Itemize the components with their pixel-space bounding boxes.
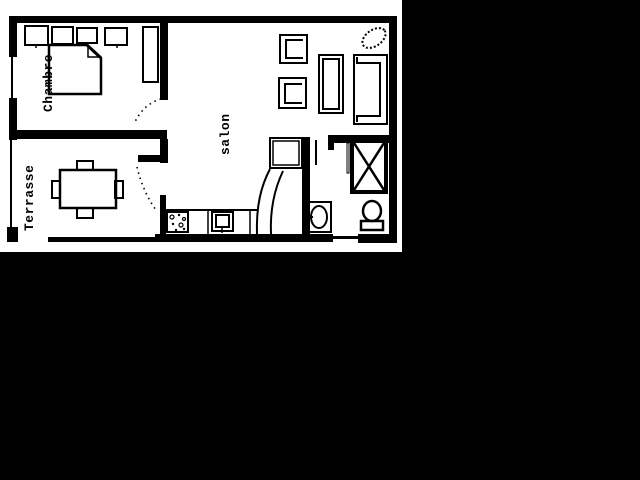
- wall-bottom-kitchen: [155, 234, 333, 242]
- wall-hall-vertical: [160, 139, 168, 163]
- terrace-label: Terrasse: [22, 165, 37, 231]
- terrace-bottom-rail: [48, 237, 160, 242]
- wall-bottom-right: [358, 234, 397, 243]
- wall-top: [9, 16, 397, 23]
- window-bedroom: [11, 57, 13, 98]
- wall-right: [389, 16, 397, 243]
- wall-left-upper: [9, 16, 17, 57]
- wall-bedroom-terrace: [9, 130, 167, 139]
- wall-bedroom-right: [160, 23, 168, 100]
- living-room-label: salon: [218, 113, 233, 155]
- plan-paper: [0, 0, 402, 252]
- window-wc: [333, 236, 358, 239]
- floor-plan: Chambre Terrasse salon: [0, 0, 640, 480]
- screenshot-root: Chambre Terrasse salon: [0, 0, 640, 480]
- bathroom-door-leaf: [315, 140, 317, 165]
- wall-kitchen-left: [160, 195, 166, 235]
- wall-hall-stub: [138, 155, 160, 162]
- bedroom-label: Chambre: [41, 54, 56, 112]
- terrace-left-rail: [10, 140, 12, 228]
- wall-bathroom-top-cap: [328, 135, 334, 150]
- wall-corner-bottom-left: [7, 227, 18, 242]
